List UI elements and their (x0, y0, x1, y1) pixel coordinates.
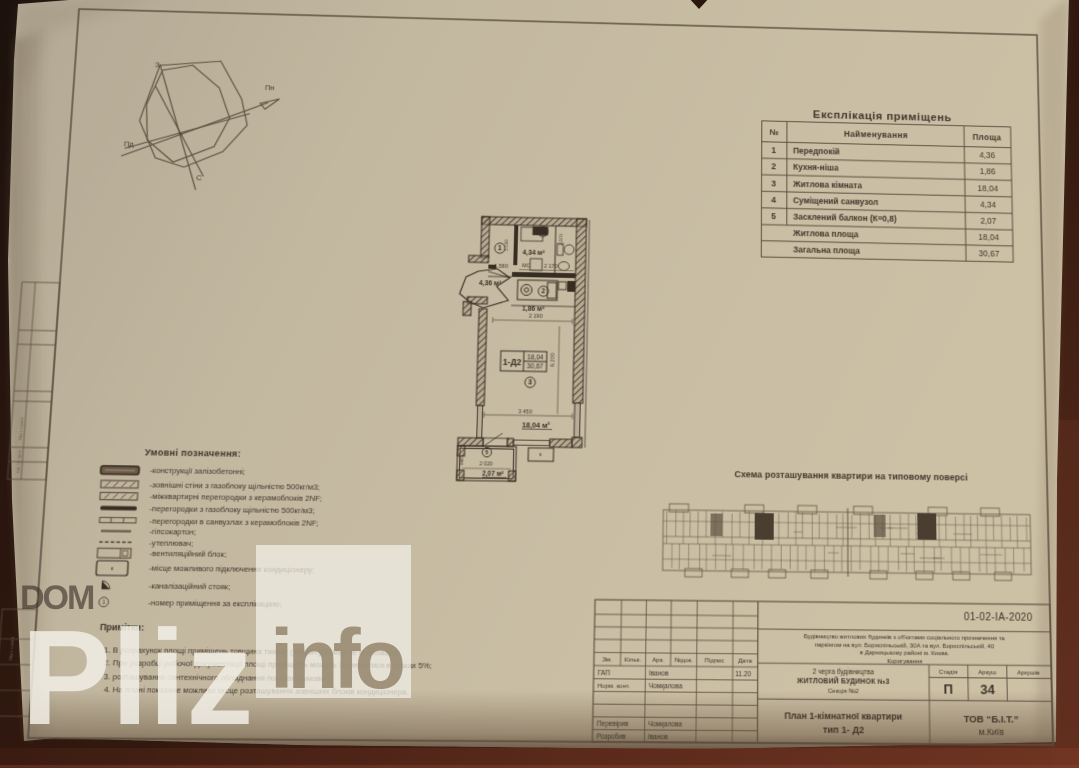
svg-text:2,07 м²: 2,07 м² (482, 470, 504, 478)
svg-text:-утеплювач;: -утеплювач; (149, 538, 193, 548)
svg-text:6.200: 6.200 (550, 353, 556, 367)
svg-text:2 190: 2 190 (529, 314, 543, 320)
svg-text:Пн: Пн (265, 83, 275, 92)
svg-text:Стадія: Стадія (939, 670, 958, 677)
svg-text:Іванов: Іванов (649, 670, 669, 678)
svg-text:3: 3 (771, 178, 776, 188)
svg-text:Схема розташування квартири на: Схема розташування квартири на типовому … (734, 469, 967, 483)
svg-text:Найменування: Найменування (844, 130, 908, 140)
svg-text:-вентиляційний блок;: -вентиляційний блок; (149, 549, 227, 560)
svg-text:-перегородки з газоблоку щільн: -перегородки з газоблоку щільністю 500кг… (149, 504, 315, 516)
svg-text:4,34: 4,34 (980, 200, 996, 209)
svg-text:4,36 м²: 4,36 м² (479, 280, 502, 288)
svg-text:Площа: Площа (973, 133, 1002, 142)
svg-text:-перегородки в санвузлах з кер: -перегородки в санвузлах з керамоблоків … (149, 516, 319, 528)
svg-text:-каналізаційний стояк;: -каналізаційний стояк; (148, 581, 230, 592)
svg-text:С: С (196, 173, 202, 182)
svg-text:2: 2 (771, 162, 776, 172)
svg-text:18,04: 18,04 (527, 354, 544, 361)
svg-text:1.150: 1.150 (504, 239, 509, 251)
svg-text:Засклений балкон (К=0,8): Засклений балкон (К=0,8) (793, 212, 897, 224)
svg-text:-міжквартирні перегородки з ке: -міжквартирні перегородки з керамоблоків… (149, 492, 322, 504)
svg-text:Інв. № ориг.: Інв. № ориг. (15, 449, 22, 473)
svg-text:1,86 м²: 1,86 м² (522, 306, 545, 314)
svg-text:3: 3 (528, 380, 532, 387)
svg-text:2.070: 2.070 (558, 233, 563, 245)
svg-text:2 020: 2 020 (479, 461, 493, 467)
svg-text:4: 4 (771, 195, 776, 205)
svg-text:Коригування: Коригування (887, 658, 922, 665)
svg-text:4,36: 4,36 (979, 151, 995, 160)
svg-text:5: 5 (485, 451, 489, 457)
svg-text:960: 960 (459, 457, 464, 465)
svg-text:тип 1- Д2: тип 1- Д2 (823, 724, 864, 735)
svg-text:30,67: 30,67 (979, 249, 1000, 258)
svg-text:1: 1 (771, 145, 776, 155)
svg-text:Підпис: Підпис (705, 659, 725, 666)
svg-text:Пд: Пд (124, 139, 135, 148)
svg-text:-гіпсокартон;: -гіпсокартон; (149, 527, 196, 537)
svg-text:18,04: 18,04 (978, 184, 999, 193)
svg-text:Перевірив: Перевірив (597, 721, 629, 729)
svg-text:01-02-ІА-2020: 01-02-ІА-2020 (964, 612, 1033, 624)
svg-text:Умовні позначення:: Умовні позначення: (145, 447, 242, 459)
svg-text:План 1-кімнатної квартири: План 1-кімнатної квартири (784, 710, 902, 722)
svg-text:Чомқалова: Чомқалова (649, 683, 683, 691)
svg-text:к: к (111, 566, 115, 573)
svg-text:Розробив: Розробив (597, 734, 627, 742)
svg-text:Аркушів: Аркушів (1017, 671, 1039, 678)
svg-text:№док.: №док. (675, 657, 694, 665)
svg-text:1-Д2: 1-Д2 (503, 358, 522, 368)
svg-text:П: П (944, 682, 954, 697)
svg-text:Кільк.: Кільк. (624, 658, 641, 665)
svg-text:Зм.: Зм. (602, 658, 612, 665)
svg-text:Житлова площа: Житлова площа (792, 229, 859, 239)
svg-text:4,34 м²: 4,34 м² (522, 249, 545, 257)
svg-text:м.Київ: м.Київ (979, 726, 1005, 737)
svg-text:Підп. і дата: Підп. і дата (18, 417, 25, 440)
svg-text:паркінгом на вул. Бориспільськ: паркінгом на вул. Бориспільській, 30А та… (815, 641, 995, 650)
svg-text:ТОВ “Б.І.Т.”: ТОВ “Б.І.Т.” (964, 714, 1019, 725)
svg-text:№: № (769, 128, 778, 137)
svg-text:2 черга будівництва: 2 черга будівництва (813, 667, 875, 676)
svg-text:Чомқалова: Чомқалова (648, 721, 682, 729)
svg-text:Кухня-ніша: Кухня-ніша (793, 163, 839, 173)
svg-text:МС: МС (522, 264, 531, 270)
svg-text:к: к (539, 453, 542, 458)
svg-text:34: 34 (980, 683, 995, 698)
svg-text:Експлікація приміщень: Експлікація приміщень (813, 109, 952, 124)
svg-text:ЖИТЛОВИЙ БУДИНОК №3: ЖИТЛОВИЙ БУДИНОК №3 (796, 676, 890, 687)
svg-text:Будівництво житлових будинків: Будівництво житлових будинків з об'єктам… (804, 634, 1006, 642)
svg-text:Передпокій: Передпокій (793, 147, 840, 157)
svg-text:в Дарницькому районі м. Києва.: в Дарницькому районі м. Києва. (860, 649, 950, 657)
svg-text:Норм. конт.: Норм. конт. (597, 683, 630, 690)
svg-text:2 170: 2 170 (544, 264, 558, 270)
svg-text:Дата: Дата (738, 659, 753, 666)
svg-text:1: 1 (498, 245, 502, 252)
svg-text:Підп. і дата: Підп. і дата (8, 636, 15, 660)
svg-text:2: 2 (541, 289, 545, 296)
svg-text:Секція №2: Секція №2 (828, 688, 860, 696)
svg-text:Аркуш: Аркуш (978, 670, 996, 677)
svg-text:4: 4 (541, 229, 545, 236)
svg-text:Іванов: Іванов (648, 734, 669, 742)
svg-text:3 450: 3 450 (518, 409, 532, 415)
svg-text:Загальна площа: Загальна площа (793, 245, 860, 255)
svg-text:-зовнішні стіни з газоблоку щі: -зовнішні стіни з газоблоку щільністю 50… (149, 480, 320, 492)
svg-text:30,67: 30,67 (527, 364, 544, 371)
svg-text:ГАП: ГАП (598, 670, 610, 678)
svg-text:Суміщений санвузол: Суміщений санвузол (793, 196, 878, 207)
svg-text:1.580: 1.580 (494, 264, 508, 270)
svg-text:Житлова кімната: Житлова кімната (792, 180, 862, 190)
svg-text:5: 5 (771, 211, 776, 221)
svg-text:1,86: 1,86 (980, 167, 996, 176)
svg-text:Арк.: Арк. (652, 658, 665, 665)
svg-text:18,04: 18,04 (978, 233, 999, 242)
svg-text:2,07: 2,07 (980, 217, 996, 226)
svg-text:-конструкції залізобетонні;: -конструкції залізобетонні; (150, 466, 246, 477)
svg-text:11.20: 11.20 (735, 671, 751, 679)
